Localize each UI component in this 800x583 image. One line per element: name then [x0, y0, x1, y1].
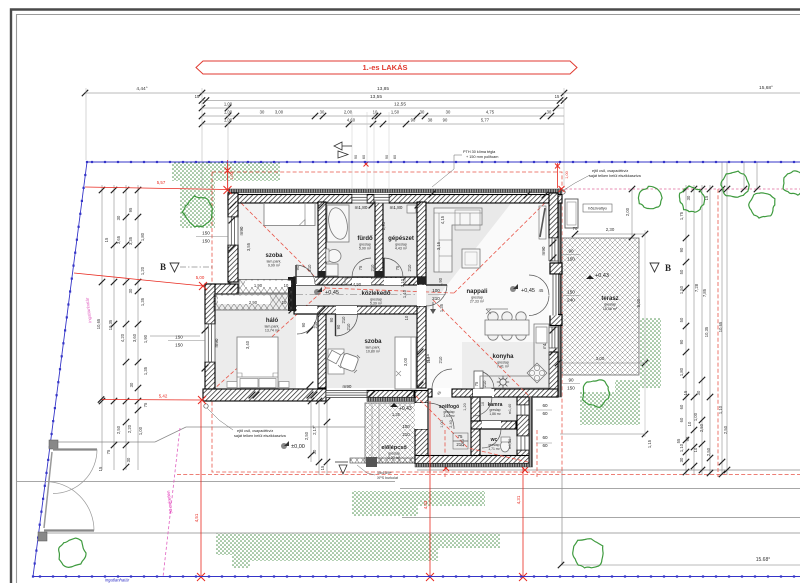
svg-text:1,10: 1,10: [679, 443, 684, 452]
svg-text:90: 90: [679, 247, 684, 252]
svg-text:150: 150: [202, 239, 210, 244]
svg-text:13,85: 13,85: [377, 86, 389, 92]
svg-text:gépészet: gépészet: [388, 236, 414, 242]
svg-text:1,20: 1,20: [140, 266, 145, 275]
svg-text:10,35: 10,35: [704, 326, 709, 337]
svg-text:m1,50: m1,50: [508, 439, 512, 450]
svg-text:közlekedő: közlekedő: [361, 291, 390, 297]
svg-text:210: 210: [370, 264, 375, 272]
svg-text:1,50: 1,50: [391, 110, 400, 115]
svg-text:210: 210: [438, 356, 443, 364]
svg-text:2,95: 2,95: [381, 221, 386, 230]
svg-text:4,33: 4,33: [423, 500, 428, 509]
svg-text:1,00: 1,00: [138, 426, 143, 435]
svg-text:3,64 m²: 3,64 m²: [443, 414, 455, 418]
svg-text:konyha: konyha: [492, 354, 514, 360]
svg-text:60: 60: [362, 155, 366, 159]
svg-text:2,30: 2,30: [606, 227, 615, 232]
svg-text:1,86 m²: 1,86 m²: [489, 412, 501, 416]
svg-text:15: 15: [683, 390, 688, 395]
svg-text:30: 30: [129, 382, 134, 387]
svg-text:+ 150 mm polifoam: + 150 mm polifoam: [466, 155, 498, 159]
svg-text:150: 150: [567, 257, 575, 262]
svg-text:B: B: [665, 263, 671, 273]
svg-text:150: 150: [567, 386, 575, 391]
svg-text:210: 210: [313, 321, 318, 329]
svg-text:150: 150: [202, 231, 210, 236]
svg-text:3,35: 3,35: [128, 236, 133, 245]
svg-text:15: 15: [195, 94, 200, 99]
svg-text:1,50: 1,50: [679, 285, 684, 294]
svg-text:10,35: 10,35: [108, 319, 113, 330]
svg-text:240: 240: [567, 298, 575, 303]
svg-text:2,50: 2,50: [116, 425, 121, 434]
svg-text:2,50: 2,50: [699, 423, 704, 432]
svg-text:10,65: 10,65: [718, 321, 723, 332]
svg-text:2,17°: 2,17°: [312, 425, 317, 435]
svg-text:1,10: 1,10: [718, 405, 723, 414]
svg-text:1,90: 1,90: [254, 283, 263, 288]
svg-text:ejtő cső, csapadékvíz: ejtő cső, csapadékvíz: [237, 429, 273, 433]
svg-text:210: 210: [341, 316, 346, 324]
svg-text:100: 100: [402, 424, 410, 429]
svg-text:60: 60: [679, 417, 684, 422]
svg-text:60: 60: [542, 443, 548, 448]
svg-text:4,15: 4,15: [440, 215, 445, 224]
svg-text:210: 210: [456, 442, 464, 447]
svg-text:30: 30: [686, 195, 691, 200]
svg-text:15,06 m²: 15,06 m²: [603, 307, 618, 311]
svg-text:1,80: 1,80: [140, 232, 145, 241]
svg-text:3,55: 3,55: [246, 242, 251, 251]
svg-text:1,00: 1,00: [230, 172, 234, 179]
svg-text:210: 210: [432, 296, 440, 301]
svg-text:60: 60: [542, 435, 548, 440]
svg-text:75: 75: [358, 265, 363, 270]
svg-text:3,15: 3,15: [436, 241, 441, 250]
svg-text:100: 100: [432, 288, 440, 293]
svg-text:1,10: 1,10: [400, 278, 405, 287]
svg-text:5,00: 5,00: [196, 275, 205, 280]
svg-text:2,00: 2,00: [344, 110, 353, 115]
svg-text:90: 90: [443, 118, 448, 123]
svg-text:saját telken belül elszikkaszt: saját telken belül elszikkasztva: [234, 434, 287, 438]
svg-text:12,55: 12,55: [394, 102, 406, 108]
svg-text:5,90 m²: 5,90 m²: [359, 247, 372, 251]
svg-text:saját telken belül elszikkaszt: saját telken belül elszikkasztva: [589, 174, 642, 178]
svg-text:7,41 m²: 7,41 m²: [497, 365, 510, 369]
svg-text:30: 30: [312, 449, 317, 454]
svg-text:90: 90: [329, 317, 334, 322]
svg-text:30: 30: [679, 457, 684, 462]
svg-text:1,90: 1,90: [438, 277, 443, 286]
svg-text:50: 50: [679, 317, 684, 322]
svg-text:60: 60: [542, 403, 548, 408]
svg-text:210: 210: [482, 380, 487, 388]
svg-text:4,90: 4,90: [353, 282, 362, 287]
svg-text:szoba: szoba: [265, 253, 283, 259]
svg-text:45: 45: [539, 288, 544, 293]
svg-text:30: 30: [128, 288, 133, 293]
svg-text:PTH 30 klíma tégla: PTH 30 klíma tégla: [463, 150, 496, 154]
svg-text:1,35: 1,35: [140, 297, 145, 306]
svg-text:10: 10: [282, 300, 287, 305]
svg-text:210: 210: [402, 432, 410, 437]
svg-text:30: 30: [320, 110, 325, 115]
svg-text:2,90: 2,90: [249, 300, 258, 305]
svg-text:210: 210: [307, 264, 312, 272]
svg-text:nappali: nappali: [466, 289, 487, 295]
svg-text:4,43 m²: 4,43 m²: [395, 247, 408, 251]
svg-text:3,27 m²: 3,27 m²: [388, 456, 401, 460]
svg-text:110: 110: [426, 356, 431, 363]
svg-text:60: 60: [679, 404, 684, 409]
svg-text:m90: m90: [343, 384, 352, 389]
svg-text:+0,45: +0,45: [521, 288, 535, 294]
svg-text:13,74 m²: 13,74 m²: [265, 329, 280, 333]
svg-text:3,00: 3,00: [275, 110, 284, 115]
svg-text:150: 150: [567, 290, 575, 295]
svg-text:2,00: 2,00: [625, 207, 630, 216]
svg-text:4,20: 4,20: [120, 333, 125, 342]
svg-text:1,75: 1,75: [679, 211, 684, 220]
svg-text:m90: m90: [541, 246, 546, 255]
svg-text:90: 90: [354, 155, 358, 159]
svg-text:4,51: 4,51: [194, 513, 199, 522]
svg-text:30: 30: [547, 110, 552, 115]
svg-text:m1,80: m1,80: [390, 205, 403, 210]
svg-text:1,00: 1,00: [224, 102, 233, 107]
svg-text:9,99 m²: 9,99 m²: [268, 264, 281, 268]
svg-text:90: 90: [411, 118, 416, 123]
svg-text:3,65: 3,65: [116, 235, 121, 244]
svg-text:1,10: 1,10: [402, 289, 407, 298]
svg-text:90: 90: [568, 249, 574, 254]
svg-text:4,44°: 4,44°: [136, 86, 147, 92]
svg-text:1,80: 1,80: [679, 367, 684, 376]
svg-text:27,33 m²: 27,33 m²: [470, 300, 485, 304]
svg-text:90: 90: [301, 322, 306, 327]
svg-text:10,65: 10,65: [96, 318, 101, 329]
svg-text:50: 50: [679, 269, 684, 274]
svg-text:30: 30: [420, 110, 425, 115]
svg-text:2,50: 2,50: [723, 425, 728, 434]
svg-text:60: 60: [393, 155, 397, 159]
svg-text:15: 15: [98, 466, 103, 471]
svg-text:1,00: 1,00: [565, 171, 569, 178]
svg-text:75: 75: [106, 449, 111, 454]
svg-text:ejtő cső, csapadékvíz: ejtő cső, csapadékvíz: [592, 169, 628, 173]
svg-text:+0,43: +0,43: [399, 406, 412, 412]
svg-text:1,71 m²: 1,71 m²: [488, 447, 500, 451]
svg-text:1,35: 1,35: [143, 366, 148, 375]
svg-text:2,50: 2,50: [304, 431, 309, 440]
svg-text:5,42: 5,42: [159, 394, 168, 399]
svg-text:10: 10: [687, 421, 692, 426]
svg-text:hőszivattyú: hőszivattyú: [588, 207, 606, 211]
svg-text:2,20: 2,20: [127, 424, 132, 433]
svg-text:15: 15: [104, 237, 109, 242]
svg-text:ingatlanhatár: ingatlanhatár: [105, 578, 130, 583]
svg-text:10: 10: [481, 402, 485, 406]
svg-text:m1,80: m1,80: [355, 205, 368, 210]
svg-text:10,80 m²: 10,80 m²: [366, 350, 381, 354]
svg-text:30: 30: [116, 215, 121, 220]
svg-text:10: 10: [284, 283, 289, 288]
svg-text:90: 90: [385, 155, 389, 159]
svg-text:4,75: 4,75: [486, 110, 495, 115]
svg-text:háló: háló: [266, 318, 279, 324]
svg-text:10: 10: [373, 110, 378, 115]
svg-text:15,68°: 15,68°: [759, 85, 773, 91]
svg-text:előlépcső: előlépcső: [381, 445, 407, 451]
svg-text:150: 150: [175, 343, 183, 348]
svg-text:10: 10: [693, 447, 698, 452]
svg-text:60: 60: [685, 436, 690, 441]
svg-text:szoba: szoba: [364, 339, 382, 345]
svg-text:4,31: 4,31: [516, 495, 521, 504]
svg-text:95: 95: [128, 207, 133, 212]
svg-text:1,15: 1,15: [647, 439, 652, 448]
svg-text:terasz: terasz: [601, 296, 618, 302]
svg-text:m90: m90: [239, 226, 244, 235]
svg-text:13,55: 13,55: [370, 94, 382, 100]
svg-text:90: 90: [568, 378, 574, 383]
svg-text:2,50: 2,50: [706, 447, 711, 456]
svg-text:55: 55: [676, 438, 681, 443]
svg-text:90: 90: [336, 324, 341, 329]
svg-text:±0,00: ±0,00: [291, 444, 305, 450]
svg-text:150: 150: [175, 335, 183, 340]
svg-text:1,00: 1,00: [224, 110, 233, 115]
svg-text:90: 90: [295, 265, 300, 270]
svg-text:+0,45: +0,45: [325, 290, 339, 296]
svg-text:7,28: 7,28: [694, 283, 699, 292]
svg-text:+0,43: +0,43: [595, 273, 609, 279]
svg-text:210: 210: [346, 323, 351, 331]
svg-text:1,00: 1,00: [693, 412, 698, 421]
svg-text:5,39 m²: 5,39 m²: [370, 302, 383, 306]
svg-text:m90: m90: [214, 338, 219, 347]
svg-text:fürdő: fürdő: [357, 236, 373, 242]
svg-text:70: 70: [573, 226, 578, 231]
svg-text:1,20: 1,20: [463, 403, 467, 410]
svg-text:1,35: 1,35: [392, 412, 401, 417]
svg-text:3,60: 3,60: [132, 333, 137, 342]
svg-text:1,90: 1,90: [143, 334, 148, 343]
svg-text:90: 90: [679, 339, 684, 344]
svg-text:30: 30: [126, 457, 131, 462]
svg-text:15.68°: 15.68°: [756, 557, 771, 563]
svg-text:5,00: 5,00: [636, 298, 641, 307]
svg-text:1,00: 1,00: [440, 420, 444, 427]
svg-text:XPS burkolat: XPS burkolat: [377, 476, 398, 480]
svg-text:15: 15: [320, 465, 325, 470]
svg-text:30: 30: [696, 390, 701, 395]
svg-text:75: 75: [458, 434, 463, 439]
svg-text:1,00: 1,00: [224, 118, 233, 123]
svg-text:38: 38: [428, 118, 433, 123]
svg-text:3,40: 3,40: [245, 340, 250, 349]
svg-text:5,57: 5,57: [157, 180, 166, 185]
svg-text:greslap: greslap: [604, 303, 616, 307]
svg-text:15x15/9+: 15x15/9+: [377, 471, 392, 475]
svg-text:1.-es LAKÁS: 1.-es LAKÁS: [362, 63, 407, 72]
svg-text:75: 75: [143, 402, 148, 407]
svg-text:10: 10: [404, 315, 409, 320]
svg-text:60: 60: [542, 411, 548, 416]
svg-text:3,00: 3,00: [596, 356, 605, 361]
svg-text:7,85: 7,85: [702, 288, 707, 297]
svg-text:210: 210: [407, 264, 412, 272]
svg-text:m1,40: m1,40: [508, 404, 512, 415]
svg-text:75: 75: [474, 381, 479, 386]
svg-text:5,77: 5,77: [481, 118, 490, 123]
svg-text:75: 75: [395, 265, 400, 270]
svg-text:30: 30: [260, 110, 265, 115]
svg-text:4,60: 4,60: [347, 118, 356, 123]
svg-text:30: 30: [446, 110, 451, 115]
svg-text:1,35: 1,35: [439, 303, 444, 312]
svg-text:2,40: 2,40: [449, 420, 453, 427]
svg-text:3,00: 3,00: [403, 357, 408, 366]
svg-text:B: B: [160, 262, 166, 272]
svg-text:15: 15: [555, 94, 560, 99]
